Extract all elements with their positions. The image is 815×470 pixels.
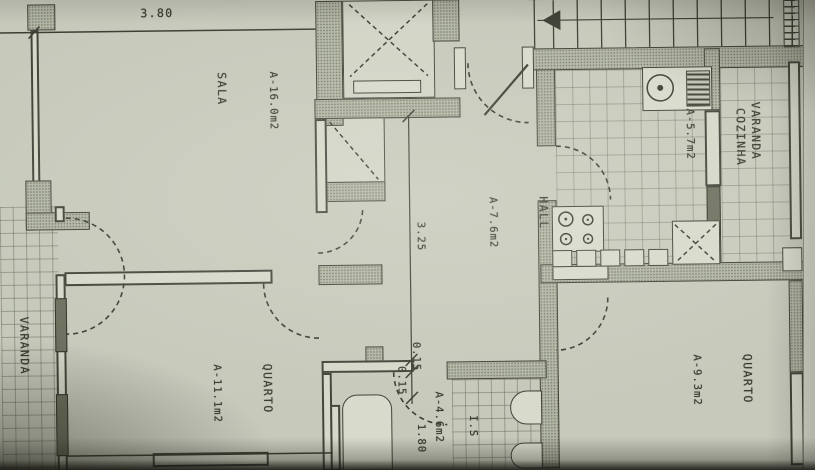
wall [325, 181, 385, 202]
room-label-sala: SALA A-16.0m2 [178, 71, 315, 131]
cabinet [600, 249, 620, 266]
scan-paper-edge [803, 0, 815, 470]
wall [789, 280, 804, 372]
dimension-wall-a: 0.15 [407, 342, 423, 371]
room-name: QUARTO [738, 354, 756, 405]
floor-plan-scan: 3.80 SALA A-16.0m2 HALL A-7.6m2 3.25 COZ… [0, 0, 815, 470]
sala-quarto-wall [64, 270, 272, 287]
room-area: A-9.3m2 [688, 354, 704, 405]
dimension-wall-b: 0.15 [393, 366, 409, 395]
sala-window [30, 30, 40, 182]
bathtub [342, 394, 393, 470]
cabinet [576, 250, 596, 267]
room-label-quarto-left: QUARTO A-11.1m2 [174, 363, 311, 423]
room-label-hall: HALL A-7.6m2 [450, 196, 587, 249]
brick-wall [783, 0, 800, 47]
cabinet [648, 249, 668, 266]
wall [447, 360, 547, 379]
sala-hall-wall [315, 119, 328, 213]
varanda-parapet [788, 61, 802, 239]
cabinet [552, 250, 572, 267]
room-label-quarto-right: QUARTO A-9.3m2 [653, 353, 790, 406]
room-area: A-11.1m2 [208, 364, 224, 423]
floor-plan-drawing: 3.80 SALA A-16.0m2 HALL A-7.6m2 3.25 COZ… [0, 0, 815, 470]
toilet [510, 390, 542, 424]
parapet-pier [782, 247, 802, 271]
wall [314, 97, 460, 119]
wall [318, 264, 382, 285]
varanda-wall [55, 206, 65, 222]
stairs [529, 0, 798, 48]
scan-shadow-band [0, 460, 815, 470]
door-jamb [522, 46, 535, 88]
room-label-varanda-left: VARANDA [15, 317, 33, 375]
quarto-window [56, 394, 69, 456]
room-area: A-7.6m2 [484, 197, 500, 248]
dimension-hall-length: 3.25 [412, 222, 428, 251]
door-jamb [454, 47, 467, 89]
cabinet [624, 249, 644, 266]
quarto-window [55, 298, 68, 352]
room-name: HALL [534, 196, 552, 247]
dimension-is-width: 1.80 [412, 424, 428, 453]
wall [27, 4, 55, 30]
elevator-car [353, 80, 421, 94]
sink-drainer [686, 70, 710, 106]
room-label-is: I.S [464, 415, 480, 437]
room-name: SALA [212, 72, 230, 131]
room-area: A-5.7m2 [681, 108, 697, 166]
wall [432, 0, 460, 42]
room-label-varanda-right: VARANDA [746, 102, 764, 160]
room-name: QUARTO [258, 364, 276, 423]
duct-shaft [672, 220, 721, 265]
door-lintel [552, 266, 608, 281]
dimension-sala-width: 3.80 [140, 5, 174, 23]
room-area: A-16.0m2 [264, 72, 280, 131]
room-area-is: A-4.6m2 [430, 392, 446, 443]
